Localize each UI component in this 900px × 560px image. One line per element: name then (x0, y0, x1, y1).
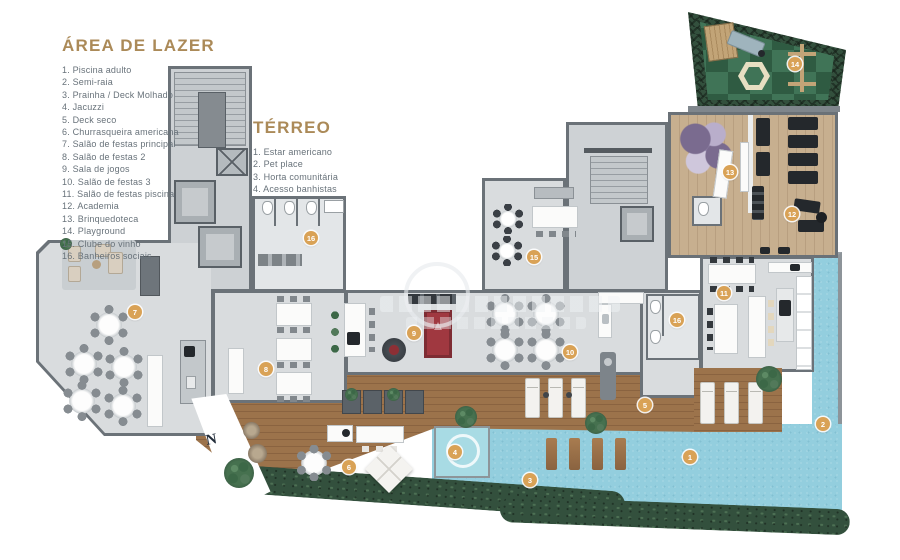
plan-marker-banheiros: 16 (304, 231, 318, 245)
chairs (707, 308, 713, 350)
wine-shelf (534, 187, 574, 199)
sun-lounger (700, 382, 715, 424)
sun-lounger (571, 378, 586, 418)
in-water-lounger (569, 438, 580, 470)
legend-item: 14. Playground (62, 225, 237, 237)
wc-partition (318, 198, 320, 226)
bush (585, 412, 607, 434)
side-table (543, 392, 549, 398)
dumbbell-rack (752, 186, 764, 220)
legend-item: 10. Salão de festas 3 (62, 176, 237, 188)
legend-item: 9. Sala de jogos (62, 163, 237, 175)
wc-partition (296, 198, 298, 226)
round-table (62, 381, 102, 421)
tall-cabinets (796, 276, 812, 370)
plan-marker-festas-3: 10 (563, 345, 577, 359)
legend-item: 12. Academia (62, 200, 237, 212)
wine-table (493, 204, 523, 234)
sink (186, 376, 196, 389)
bush (345, 388, 358, 401)
sun-lounger (525, 378, 540, 418)
legend-item: 13. Brinquedoteca (62, 213, 237, 225)
wine-table (492, 236, 522, 266)
planter-box (363, 390, 382, 414)
plan-marker-playground: 14 (788, 57, 802, 71)
staircase-east (590, 156, 648, 204)
banquet-table (276, 372, 312, 395)
legend-item: 2. Semi-raia (62, 76, 237, 88)
round-table (526, 330, 566, 370)
planter-pot (243, 422, 260, 439)
legend-item: 1. Piscina adulto (62, 64, 237, 76)
legend-area-de-lazer: ÁREA DE LAZER 1. Piscina adulto 2. Semi-… (62, 36, 237, 263)
round-table (89, 305, 129, 345)
bush (387, 388, 400, 401)
exercise-ball (816, 212, 827, 223)
cream-stools (768, 300, 774, 352)
plan-marker-festas-piscina: 11 (717, 286, 731, 300)
elevator-car (627, 213, 647, 235)
legend-title: ÁREA DE LAZER (62, 36, 237, 56)
banquet-table (276, 338, 312, 361)
playground-south-wall (688, 106, 840, 112)
treadmill (788, 117, 818, 130)
toilet (284, 201, 295, 215)
plan-marker-sala-jogos: 9 (407, 326, 421, 340)
chairs (277, 327, 311, 333)
wine-stools (536, 231, 576, 237)
island-cabinet (748, 296, 766, 358)
in-water-lounger (592, 438, 603, 470)
kitchen-counter (598, 292, 644, 304)
round-table (485, 294, 525, 334)
buffet-counter (147, 355, 163, 427)
plan-marker-brinquedoteca: 13 (723, 165, 737, 179)
round-table (485, 330, 525, 370)
bbq-stools (369, 308, 375, 352)
legend-item: 15. Clube do vinho (62, 238, 237, 250)
sun-lounger (548, 378, 563, 418)
chairs (277, 296, 311, 302)
pet-place-icons (778, 247, 790, 254)
round-table (104, 347, 144, 387)
legend-item: 16. Banheiros sociais (62, 250, 237, 262)
plan-marker-academia: 12 (785, 207, 799, 221)
game-console-row (408, 294, 456, 304)
treadmill (788, 153, 818, 166)
stair-rail (584, 148, 652, 153)
gym-machine (756, 152, 770, 176)
plan-marker-deck-seco: 5 (638, 398, 652, 412)
armchair (68, 266, 81, 282)
plan-marker-piscina-adulto: 1 (683, 450, 697, 464)
plan-marker-festas-2: 8 (259, 362, 273, 376)
plan-marker-semi-raia: 2 (816, 417, 830, 431)
sink (602, 314, 609, 324)
toilet (650, 330, 661, 344)
legend-item: 8. Salão de festas 2 (62, 151, 237, 163)
sun-lounger (724, 382, 739, 424)
deck-table (296, 445, 332, 481)
planter-pot (248, 444, 267, 463)
plan-marker-churrasqueira: 6 (342, 460, 356, 474)
plan-marker-clube-vinho: 15 (527, 250, 541, 264)
toy-shelf (740, 142, 749, 192)
wine-counter (532, 206, 578, 228)
treadmill (788, 171, 818, 184)
planter-strip (330, 308, 340, 356)
toilet (262, 201, 273, 215)
plan-marker-prainha: 3 (523, 473, 537, 487)
cooktop (790, 264, 800, 271)
legend-item: 1. Estar americano (253, 146, 373, 158)
floor-plan: N ÁREA DE LAZER 1. Piscina adulto 2. Sem… (0, 0, 900, 560)
round-table (526, 294, 566, 334)
chairs (277, 396, 311, 402)
planter-box (405, 390, 424, 414)
bbq-appliance (347, 332, 360, 345)
legend-terreo: TÉRREO 1. Estar americano 2. Pet place 3… (253, 118, 373, 196)
legend-item: 2. Pet place (253, 158, 373, 170)
deck-bar-counter (356, 426, 404, 443)
gym-machine (756, 118, 770, 146)
oven (779, 300, 791, 316)
play-toy (758, 50, 765, 57)
dining-table (714, 304, 738, 354)
bush (455, 406, 477, 428)
chairs (277, 362, 311, 368)
pet-place-icons (760, 247, 770, 254)
plan-marker-banheiros-2: 16 (670, 313, 684, 327)
stove (184, 346, 195, 357)
climber-bar (788, 82, 816, 86)
legend-list: 1. Estar americano 2. Pet place 3. Horta… (253, 146, 373, 196)
legend-item: 3. Horta comunitária (253, 171, 373, 183)
chairs (710, 257, 754, 263)
dining-table (708, 264, 756, 284)
wc-sink-counter (324, 200, 344, 213)
bbq-island (344, 303, 366, 357)
buffet-counter (228, 348, 244, 394)
plan-marker-jacuzzi: 4 (448, 445, 462, 459)
legend-item: 5. Deck seco (62, 114, 237, 126)
in-water-lounger (615, 438, 626, 470)
treadmill (788, 135, 818, 148)
toilet (650, 300, 661, 314)
palm-plant (224, 458, 254, 488)
pool-table (424, 310, 452, 358)
legend-item: 6. Churrasqueira americana (62, 126, 237, 138)
legend-title: TÉRREO (253, 118, 373, 138)
wc-partition (662, 296, 664, 336)
legend-list: 1. Piscina adulto 2. Semi-raia 3. Prainh… (62, 64, 237, 263)
banquet-table (276, 303, 312, 326)
toilet (306, 201, 317, 215)
climber-bar (788, 52, 816, 56)
legend-item: 11. Salão de festas piscina (62, 188, 237, 200)
legend-item: 7. Salão de festas principal (62, 138, 237, 150)
round-table (103, 386, 143, 426)
poker-table (382, 338, 406, 362)
wc-bench (258, 254, 302, 266)
toilet (698, 202, 709, 216)
wc-partition (274, 198, 276, 226)
side-table (566, 392, 572, 398)
in-water-lounger (546, 438, 557, 470)
palm-plant (756, 366, 782, 392)
legend-item: 3. Prainha / Deck Molhado (62, 89, 237, 101)
round-table (64, 344, 104, 384)
legend-item: 4. Jacuzzi (62, 101, 237, 113)
legend-item: 4. Acesso banhistas (253, 183, 373, 195)
grill-grate (342, 429, 350, 437)
plan-marker-festas-principal: 7 (128, 305, 142, 319)
shower-head (604, 358, 612, 366)
